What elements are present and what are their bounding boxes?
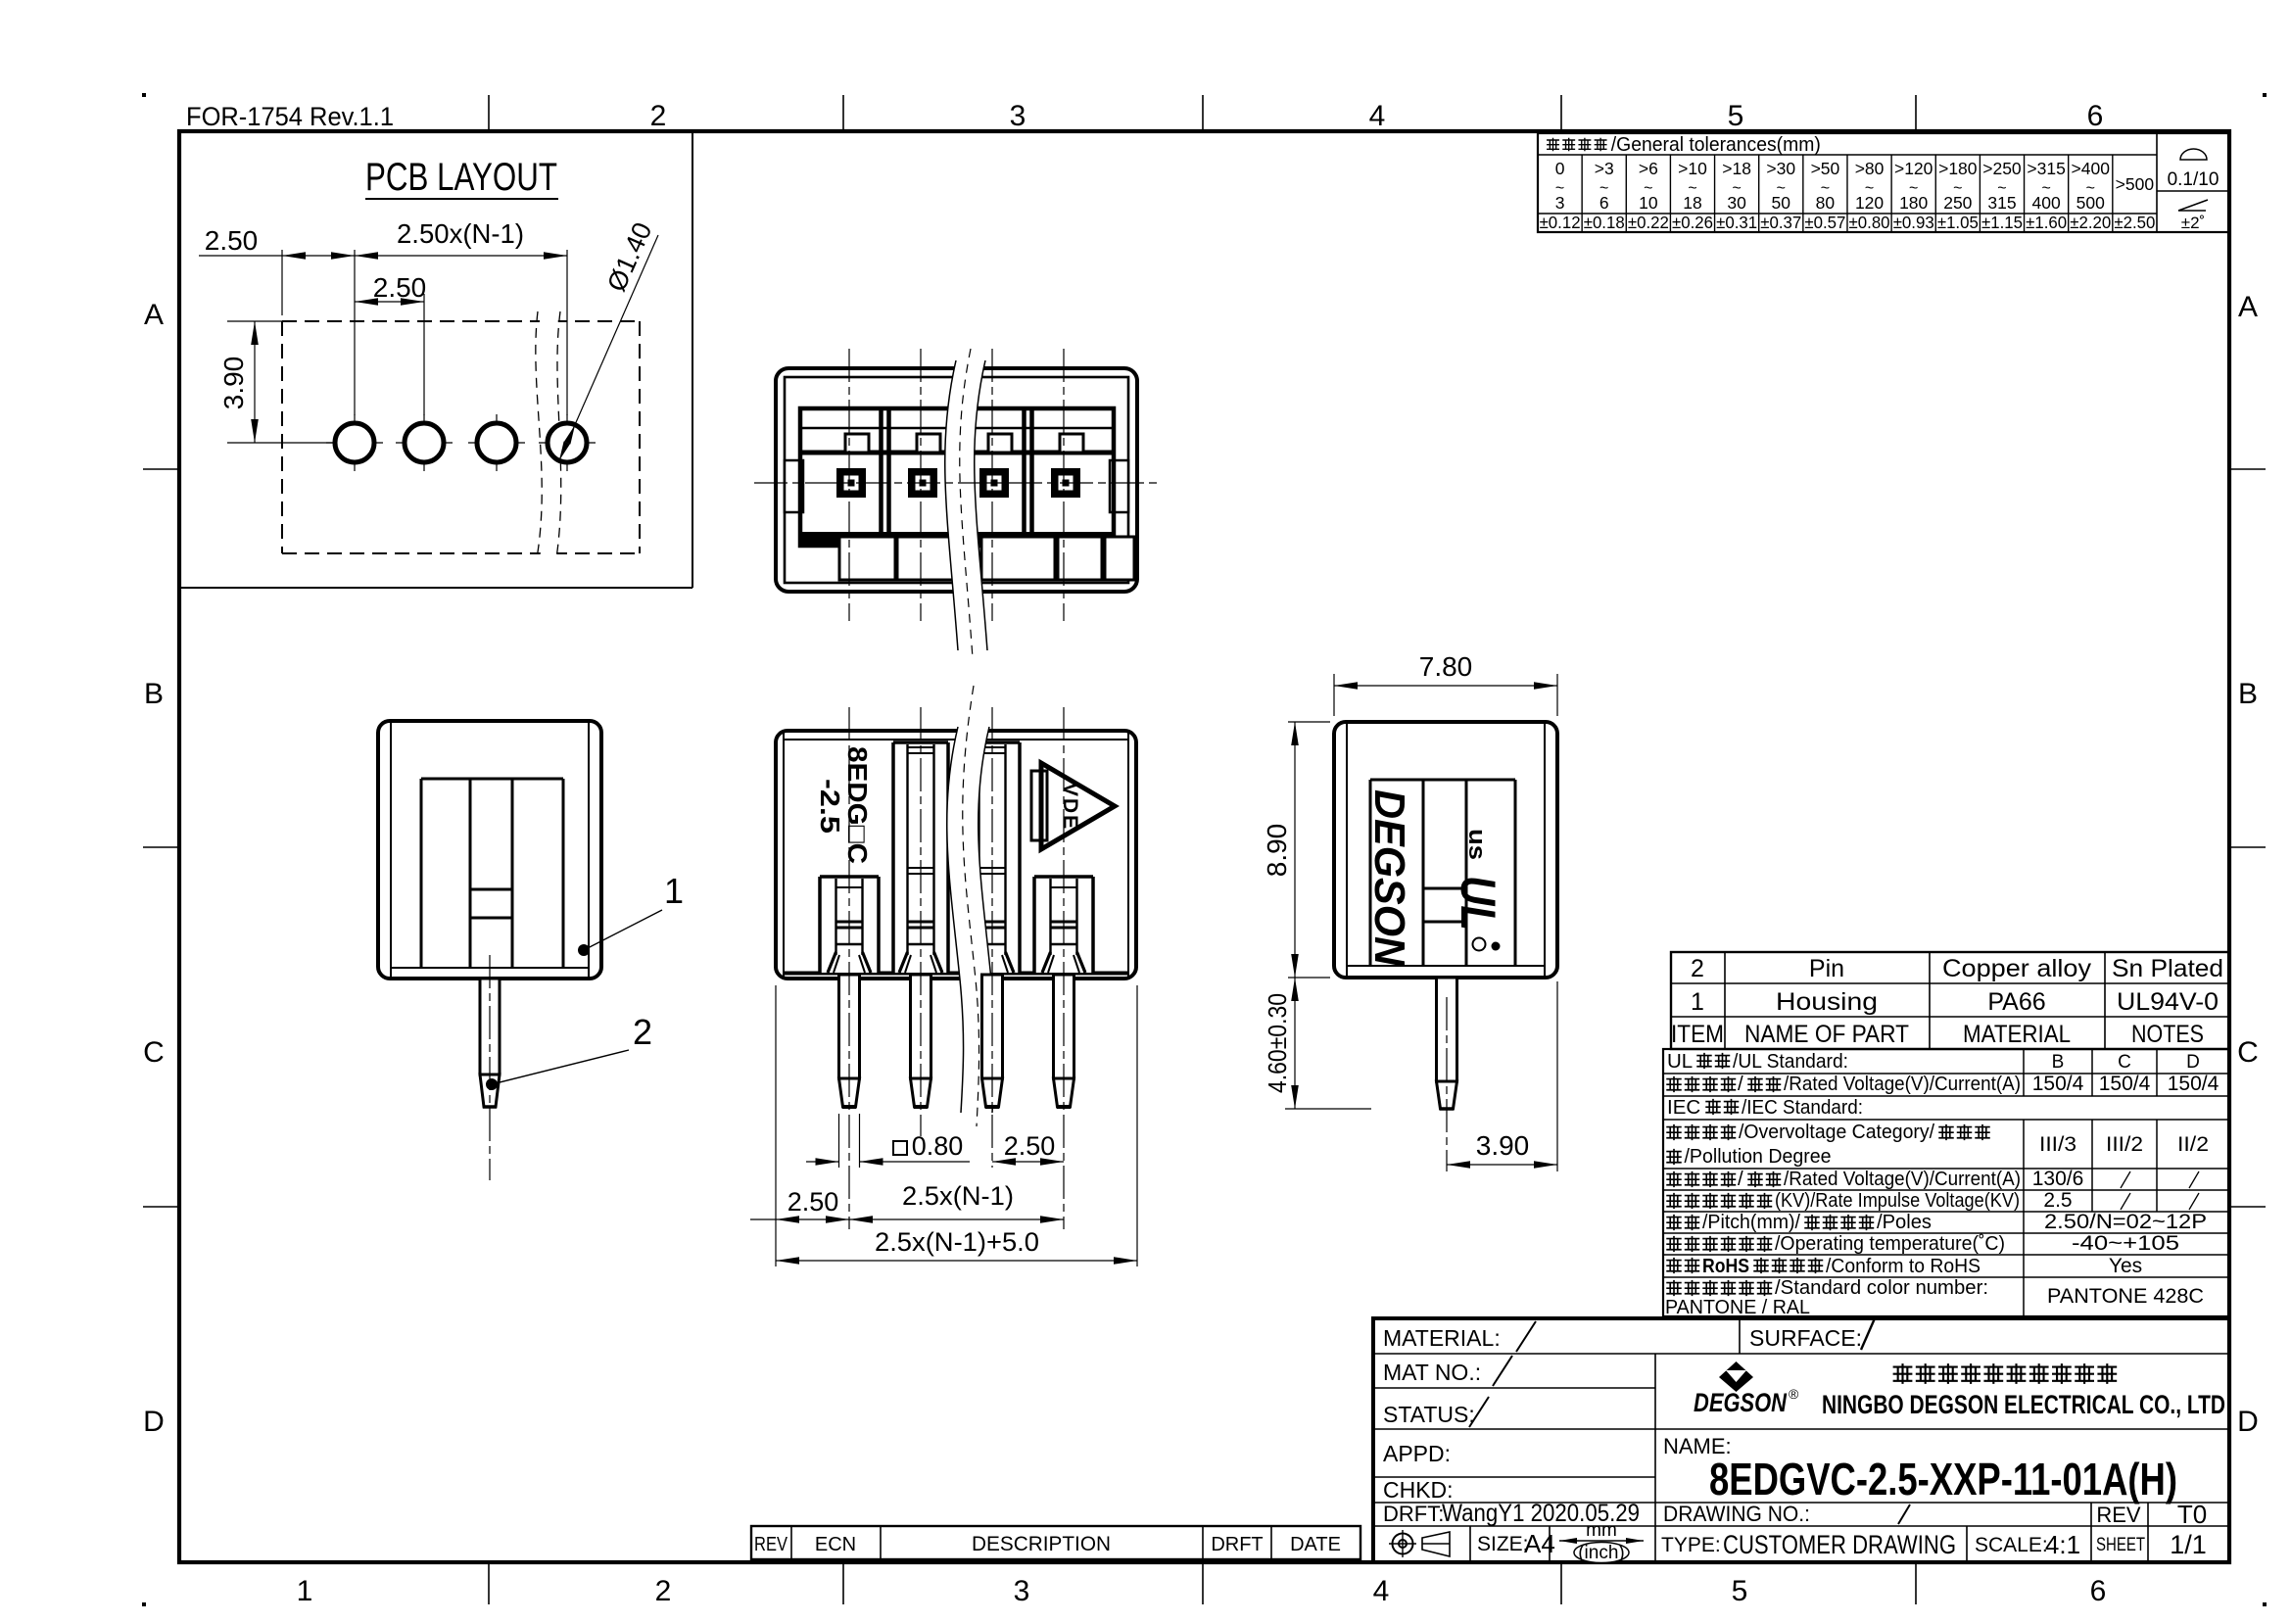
svg-text:2: 2 [655, 1575, 672, 1607]
svg-text:2.50: 2.50 [1004, 1131, 1056, 1161]
svg-text:DEGSON: DEGSON [1365, 789, 1413, 967]
svg-text:>180: >180 [1938, 159, 1978, 178]
svg-text:3: 3 [1555, 193, 1565, 213]
svg-text:>3: >3 [1595, 159, 1614, 178]
svg-text:±0.12: ±0.12 [1540, 213, 1581, 232]
svg-text:±0.18: ±0.18 [1584, 213, 1625, 232]
svg-text:±1.15: ±1.15 [1981, 213, 2023, 232]
svg-text:®: ® [1789, 1386, 1799, 1402]
svg-text:8EDGVC-2.5-XXP-11-01A(H): 8EDGVC-2.5-XXP-11-01A(H) [1709, 1454, 2177, 1505]
svg-text:>500: >500 [2116, 174, 2155, 194]
svg-text:150/4: 150/4 [2099, 1073, 2151, 1095]
svg-text:/UL Standard:: /UL Standard: [1733, 1050, 1848, 1073]
svg-text:SIZE:: SIZE: [1477, 1533, 1529, 1555]
svg-text:/: / [1738, 1073, 1743, 1095]
svg-text:DATE: DATE [1290, 1534, 1341, 1555]
svg-text:FOR-1754 Rev.1.1: FOR-1754 Rev.1.1 [186, 102, 394, 131]
svg-text:±0.57: ±0.57 [1804, 213, 1845, 232]
svg-text:PANTONE 428C: PANTONE 428C [2047, 1285, 2204, 1308]
svg-text:6: 6 [2087, 100, 2104, 132]
svg-text:MAT NO.:: MAT NO.: [1383, 1360, 1481, 1385]
svg-text:II/2: II/2 [2177, 1133, 2209, 1156]
svg-text:>120: >120 [1894, 159, 1933, 178]
svg-text:NOTES: NOTES [2131, 1021, 2204, 1048]
svg-text:±0.37: ±0.37 [1760, 213, 1801, 232]
svg-text:0.80: 0.80 [912, 1131, 964, 1161]
svg-text:UL94V-0: UL94V-0 [2117, 988, 2219, 1016]
svg-text:III/3: III/3 [2039, 1133, 2076, 1156]
svg-text:VDE: VDE [1059, 783, 1081, 831]
svg-text:III/2: III/2 [2106, 1133, 2143, 1156]
svg-text:2: 2 [1691, 955, 1704, 982]
svg-text:3: 3 [1010, 100, 1026, 132]
svg-text:2.5x(N-1)+5.0: 2.5x(N-1)+5.0 [875, 1227, 1039, 1257]
svg-text:TYPE:: TYPE: [1661, 1534, 1721, 1556]
svg-text:D: D [2186, 1052, 2200, 1073]
svg-text:180: 180 [1899, 193, 1928, 213]
svg-text:SURFACE:: SURFACE: [1749, 1325, 1862, 1351]
svg-text:B: B [2238, 678, 2258, 710]
svg-text:MATERIAL:: MATERIAL: [1383, 1325, 1501, 1351]
svg-text:250: 250 [1943, 193, 1972, 213]
svg-text:±1.05: ±1.05 [1937, 213, 1979, 232]
svg-text:80: 80 [1816, 193, 1836, 213]
svg-text:mm: mm [1586, 1520, 1617, 1541]
svg-text:>18: >18 [1722, 159, 1751, 178]
svg-text:1: 1 [297, 1575, 313, 1607]
svg-text:>250: >250 [1982, 159, 2022, 178]
svg-text:150/4: 150/4 [2032, 1073, 2084, 1095]
svg-text:150/4: 150/4 [2168, 1073, 2219, 1095]
svg-text:MATERIAL: MATERIAL [1963, 1021, 2071, 1048]
svg-text:STATUS:: STATUS: [1383, 1402, 1475, 1427]
svg-text:SCALE:: SCALE: [1975, 1534, 2048, 1556]
svg-text:8EDG□C: 8EDG□C [842, 746, 873, 864]
svg-text:30: 30 [1727, 193, 1746, 213]
svg-text:REV: REV [2096, 1503, 2141, 1527]
svg-text:C: C [143, 1036, 165, 1069]
svg-text:Pin: Pin [1809, 955, 1844, 982]
svg-text:C: C [2237, 1036, 2259, 1069]
svg-text:A: A [2238, 291, 2258, 323]
svg-text:NAME OF PART: NAME OF PART [1744, 1021, 1909, 1048]
svg-text:2: 2 [650, 100, 667, 132]
svg-text:±0.26: ±0.26 [1672, 213, 1713, 232]
svg-text:0.1/10: 0.1/10 [2168, 169, 2219, 190]
svg-text:4: 4 [1373, 1575, 1390, 1607]
svg-text:/Overvoltage Category/: /Overvoltage Category/ [1739, 1121, 1934, 1143]
svg-text:T0: T0 [2177, 1500, 2207, 1529]
svg-text:RoHS: RoHS [1702, 1255, 1749, 1277]
svg-text:±0.31: ±0.31 [1716, 213, 1757, 232]
svg-text:±2.20: ±2.20 [2070, 213, 2111, 232]
svg-text:3.90: 3.90 [1476, 1130, 1530, 1161]
svg-text:DRAWING NO.:: DRAWING NO.: [1663, 1502, 1810, 1526]
svg-text:2.50: 2.50 [205, 225, 259, 256]
svg-text:6: 6 [1599, 193, 1609, 213]
svg-text:3: 3 [1014, 1575, 1030, 1607]
svg-text:/Operating temperature(˚C): /Operating temperature(˚C) [1775, 1232, 2005, 1255]
svg-text:UL: UL [1451, 876, 1505, 931]
svg-text:DRFT:: DRFT: [1383, 1502, 1444, 1526]
svg-text:2: 2 [633, 1012, 652, 1052]
svg-text:PCB LAYOUT: PCB LAYOUT [365, 156, 557, 199]
svg-text:1: 1 [1691, 988, 1704, 1016]
svg-text:/Pollution Degree: /Pollution Degree [1685, 1145, 1832, 1168]
svg-text:ECN: ECN [815, 1534, 856, 1555]
svg-text:/Rated Voltage(V)/Current(A): /Rated Voltage(V)/Current(A) [1784, 1073, 2021, 1095]
svg-text:DESCRIPTION: DESCRIPTION [972, 1533, 1111, 1555]
svg-text:±2˚: ±2˚ [2181, 214, 2205, 232]
svg-text:±0.80: ±0.80 [1849, 213, 1890, 232]
svg-text:DEGSON: DEGSON [1694, 1388, 1787, 1417]
svg-text:/Pitch(mm)/: /Pitch(mm)/ [1702, 1211, 1800, 1233]
svg-text:us: us [1463, 829, 1490, 860]
svg-text:±2.50: ±2.50 [2114, 213, 2155, 232]
svg-text:4.60±0.30: 4.60±0.30 [1263, 993, 1292, 1093]
svg-text:B: B [2052, 1052, 2065, 1073]
svg-text:D: D [2237, 1406, 2259, 1438]
svg-text:PA66: PA66 [1987, 988, 2045, 1016]
svg-text:/General tolerances(mm): /General tolerances(mm) [1611, 134, 1821, 156]
svg-text:D: D [143, 1406, 165, 1438]
svg-text:>315: >315 [2027, 159, 2065, 178]
svg-text:REV: REV [754, 1534, 788, 1555]
svg-text:-40~+105: -40~+105 [2072, 1232, 2179, 1255]
svg-text:>50: >50 [1811, 159, 1840, 178]
svg-text:1/1: 1/1 [2170, 1530, 2207, 1559]
svg-text:5: 5 [1728, 100, 1744, 132]
svg-text:C: C [2118, 1052, 2131, 1073]
svg-text:/Poles: /Poles [1877, 1211, 1932, 1233]
svg-text:PANTONE / RAL: PANTONE / RAL [1665, 1296, 1810, 1318]
svg-text:±0.93: ±0.93 [1893, 213, 1934, 232]
svg-text:UL: UL [1667, 1050, 1693, 1073]
svg-text:DRFT: DRFT [1211, 1534, 1263, 1555]
svg-text:-2.5: -2.5 [815, 779, 845, 834]
svg-text:4: 4 [1369, 100, 1386, 132]
svg-text:10: 10 [1639, 193, 1658, 213]
svg-text:2.50/N=02~12P: 2.50/N=02~12P [2044, 1211, 2207, 1233]
svg-text:Yes: Yes [2109, 1255, 2142, 1277]
svg-text:315: 315 [1987, 193, 2016, 213]
svg-text:18: 18 [1683, 193, 1701, 213]
svg-text:A4: A4 [1524, 1529, 1555, 1558]
svg-text:2.50x(N-1): 2.50x(N-1) [397, 218, 524, 249]
svg-text:(inch): (inch) [1578, 1543, 1625, 1563]
svg-text:8.90: 8.90 [1262, 824, 1292, 878]
svg-text:ITEM: ITEM [1671, 1021, 1724, 1048]
svg-text:>30: >30 [1766, 159, 1795, 178]
svg-text:Housing: Housing [1776, 988, 1878, 1016]
svg-text:7.80: 7.80 [1419, 651, 1473, 682]
svg-text:/Conform to RoHS: /Conform to RoHS [1826, 1255, 1981, 1277]
svg-text:5: 5 [1732, 1575, 1748, 1607]
svg-text:/Rated Voltage(V)/Current(A): /Rated Voltage(V)/Current(A) [1784, 1168, 2021, 1190]
svg-text:>400: >400 [2072, 159, 2111, 178]
svg-text:2.50: 2.50 [788, 1187, 839, 1217]
svg-text:±0.22: ±0.22 [1628, 213, 1669, 232]
svg-text:Copper alloy: Copper alloy [1942, 955, 2092, 982]
svg-text:50: 50 [1772, 193, 1791, 213]
svg-text:0: 0 [1555, 159, 1565, 178]
svg-text:2.50: 2.50 [373, 272, 427, 303]
svg-text:(KV)/Rate Impulse Voltage(KV: (KV)/Rate Impulse Voltage(KV) [1775, 1189, 2020, 1212]
svg-text:130/6: 130/6 [2032, 1168, 2084, 1190]
svg-text:500: 500 [2076, 193, 2105, 213]
svg-text:APPD:: APPD: [1383, 1441, 1451, 1466]
svg-text:2.5: 2.5 [2043, 1189, 2072, 1212]
svg-text:1: 1 [664, 871, 684, 911]
svg-text:Sn Plated: Sn Plated [2112, 955, 2223, 982]
svg-text:>80: >80 [1855, 159, 1885, 178]
svg-text:A: A [144, 299, 164, 331]
svg-text:400: 400 [2032, 193, 2061, 213]
svg-text:4:1: 4:1 [2045, 1530, 2080, 1559]
svg-text:/IEC Standard:: /IEC Standard: [1742, 1096, 1863, 1119]
svg-text:±1.60: ±1.60 [2026, 213, 2067, 232]
svg-text:2.5x(N-1): 2.5x(N-1) [902, 1181, 1014, 1211]
svg-text:>6: >6 [1639, 159, 1658, 178]
svg-text:SHEET: SHEET [2096, 1535, 2145, 1555]
svg-text:/: / [1738, 1168, 1743, 1190]
svg-text:CUSTOMER DRAWING: CUSTOMER DRAWING [1723, 1530, 1956, 1559]
svg-text:IEC: IEC [1667, 1096, 1700, 1119]
svg-text:>10: >10 [1678, 159, 1707, 178]
svg-text:6: 6 [2090, 1575, 2107, 1607]
svg-text:B: B [144, 678, 164, 710]
svg-text:3.90: 3.90 [218, 357, 249, 410]
svg-text:NINGBO DEGSON ELECTRICAL CO.,: NINGBO DEGSON ELECTRICAL CO., LTD [1822, 1390, 2225, 1419]
svg-text:120: 120 [1855, 193, 1884, 213]
